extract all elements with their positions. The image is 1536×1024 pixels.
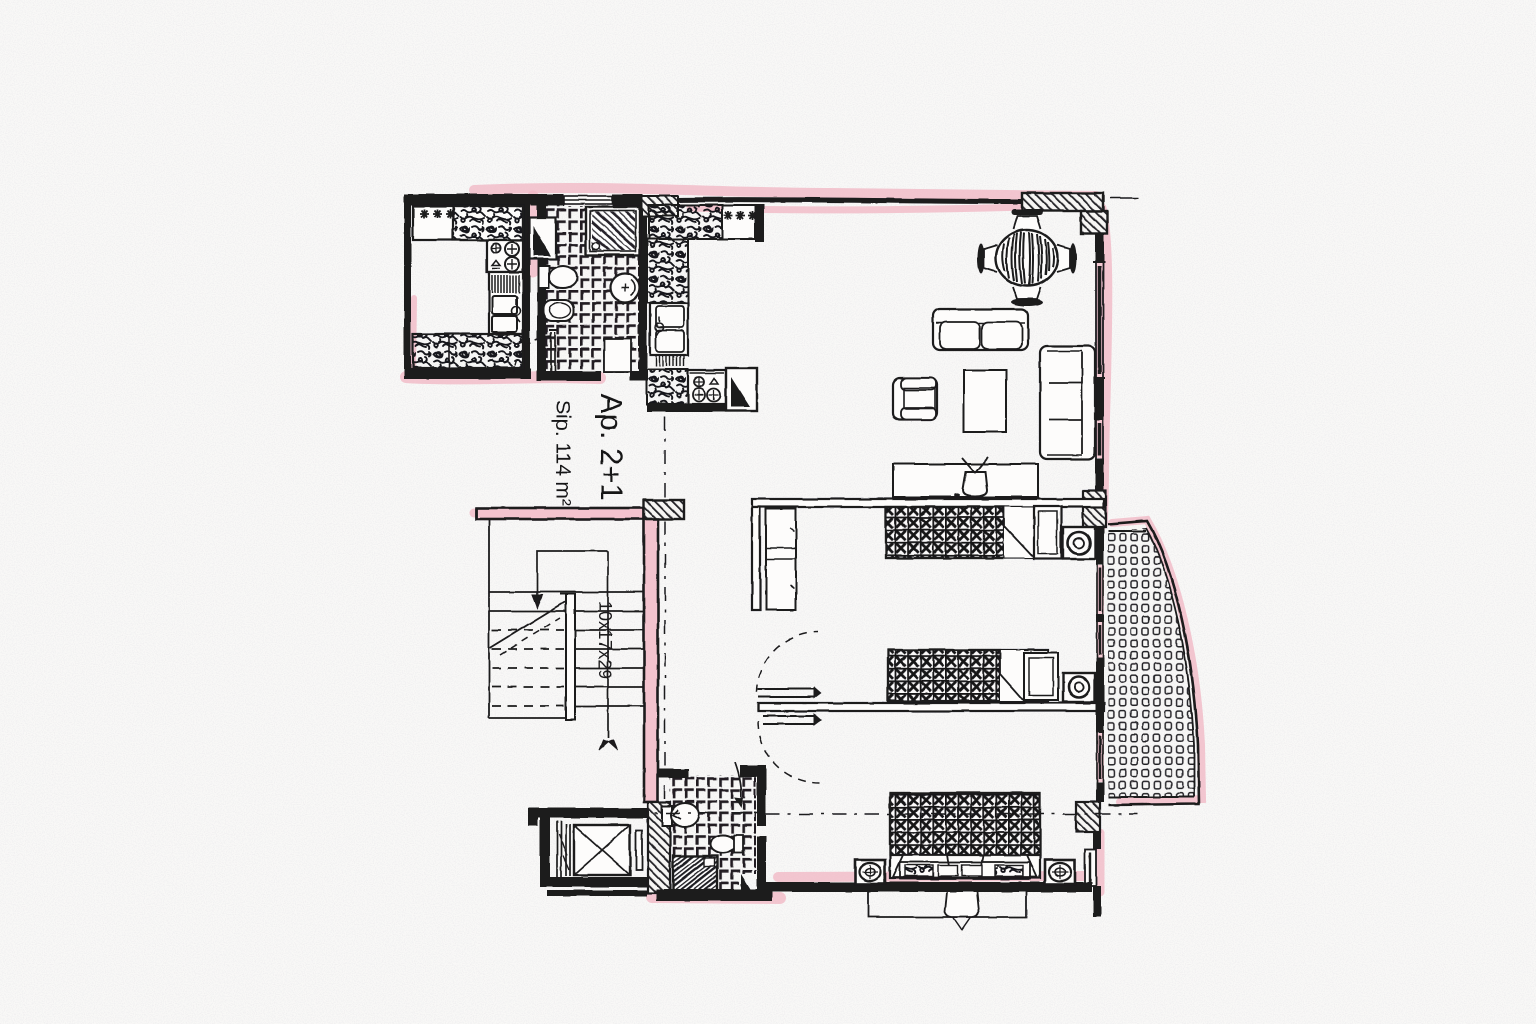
svg-text:Ap. 2+1: Ap. 2+1 bbox=[594, 393, 629, 501]
svg-text:10x17x29: 10x17x29 bbox=[595, 601, 615, 679]
svg-text:Sip. 114 m²: Sip. 114 m² bbox=[551, 400, 574, 506]
